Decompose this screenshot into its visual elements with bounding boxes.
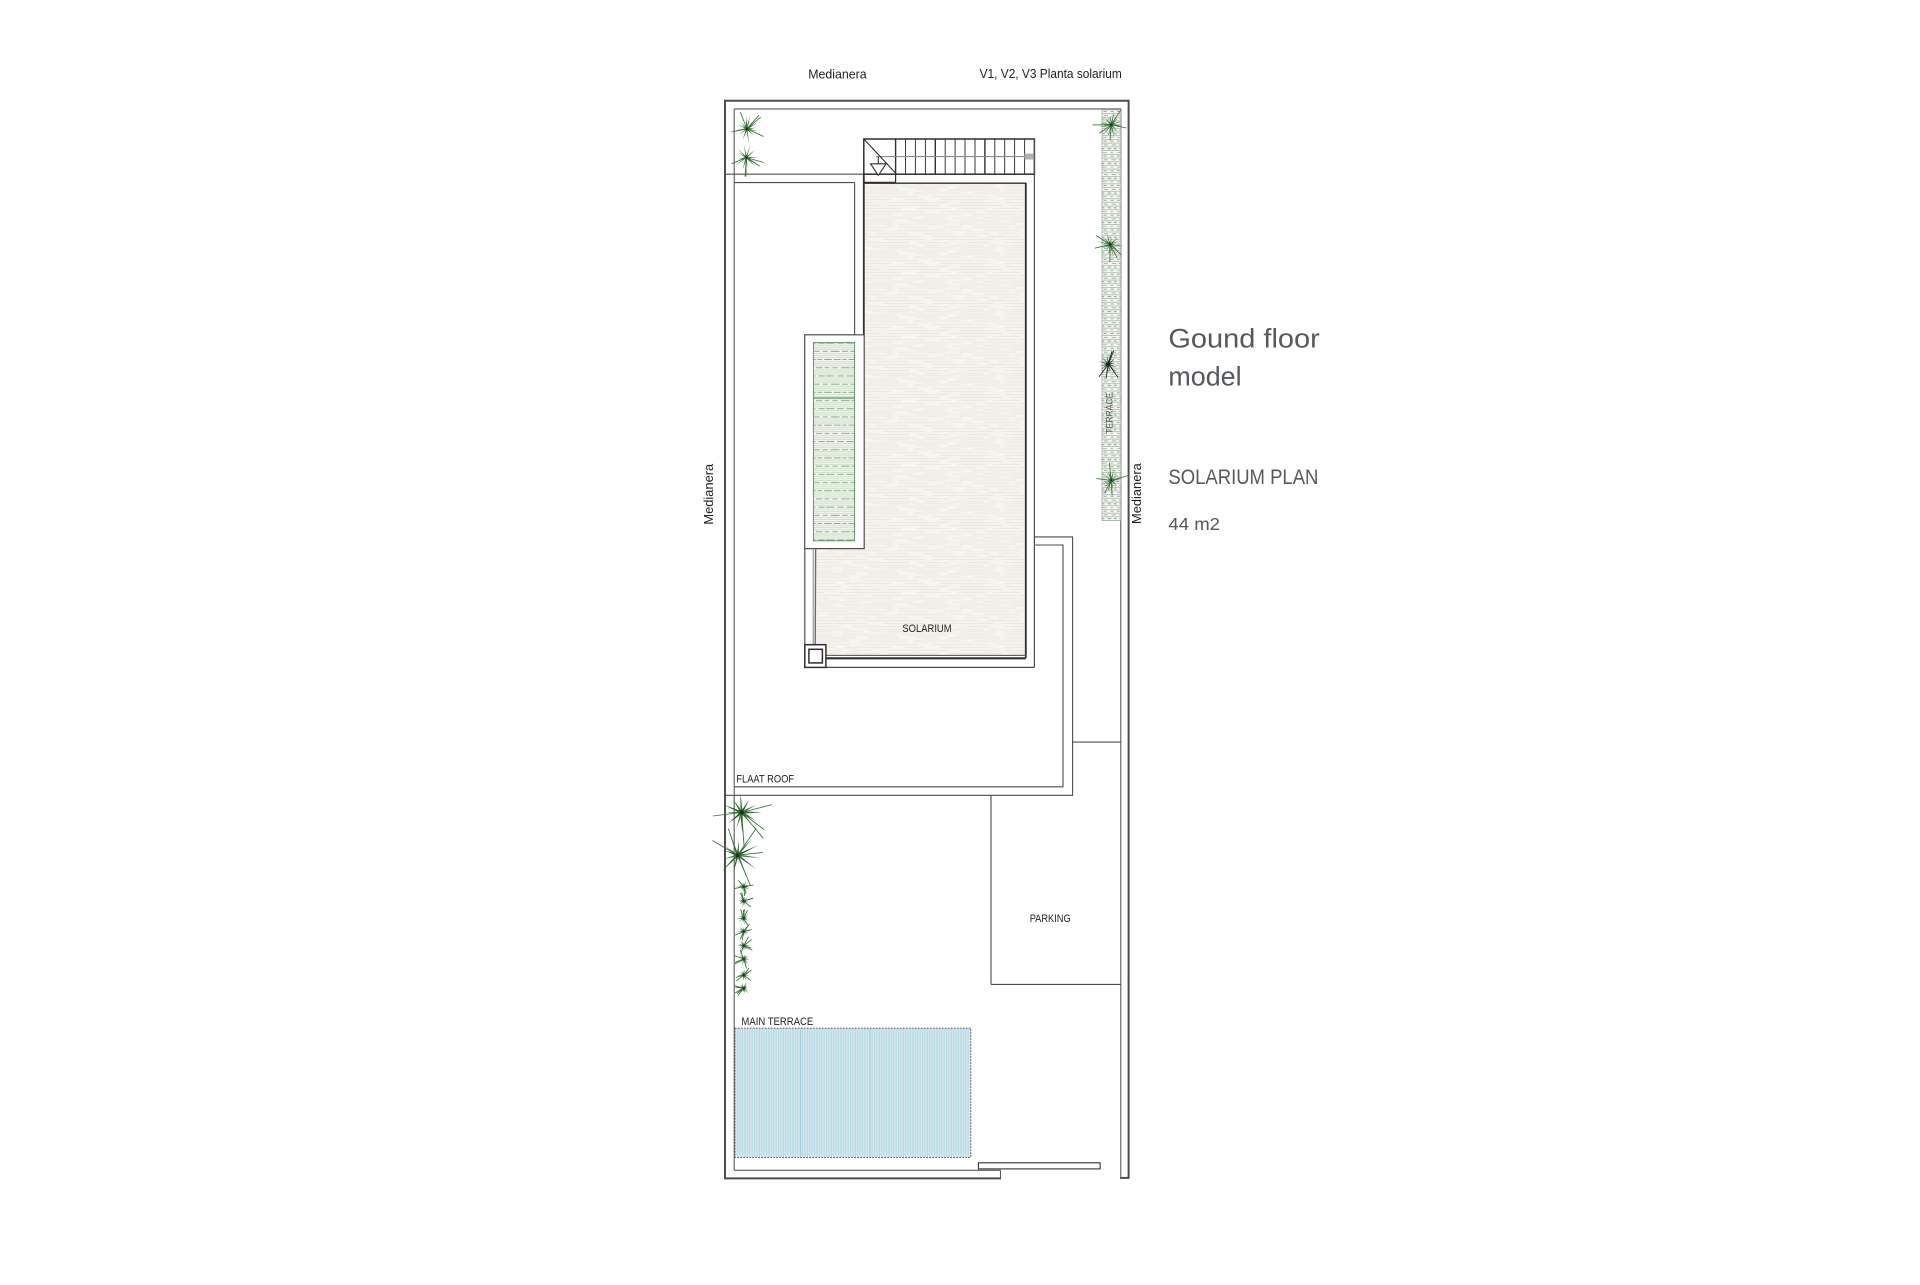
- svg-text:PARKING: PARKING: [1030, 913, 1071, 925]
- svg-text:TERRACE: TERRACE: [1105, 393, 1116, 434]
- svg-text:FLAAT ROOF: FLAAT ROOF: [736, 774, 794, 786]
- svg-text:Medianera: Medianera: [1130, 463, 1144, 524]
- svg-text:V1, V2, V3 Planta solarium: V1, V2, V3 Planta solarium: [980, 67, 1122, 81]
- svg-text:model: model: [1168, 361, 1241, 391]
- svg-text:Medianera: Medianera: [808, 68, 866, 82]
- svg-text:SOLARIUM: SOLARIUM: [902, 623, 951, 635]
- svg-text:SOLARIUM PLAN: SOLARIUM PLAN: [1168, 466, 1318, 489]
- svg-text:Gound floor: Gound floor: [1168, 323, 1319, 353]
- svg-text:MAIN TERRACE: MAIN TERRACE: [741, 1016, 813, 1028]
- svg-text:44 m2: 44 m2: [1168, 514, 1220, 534]
- svg-text:Medianera: Medianera: [702, 464, 716, 525]
